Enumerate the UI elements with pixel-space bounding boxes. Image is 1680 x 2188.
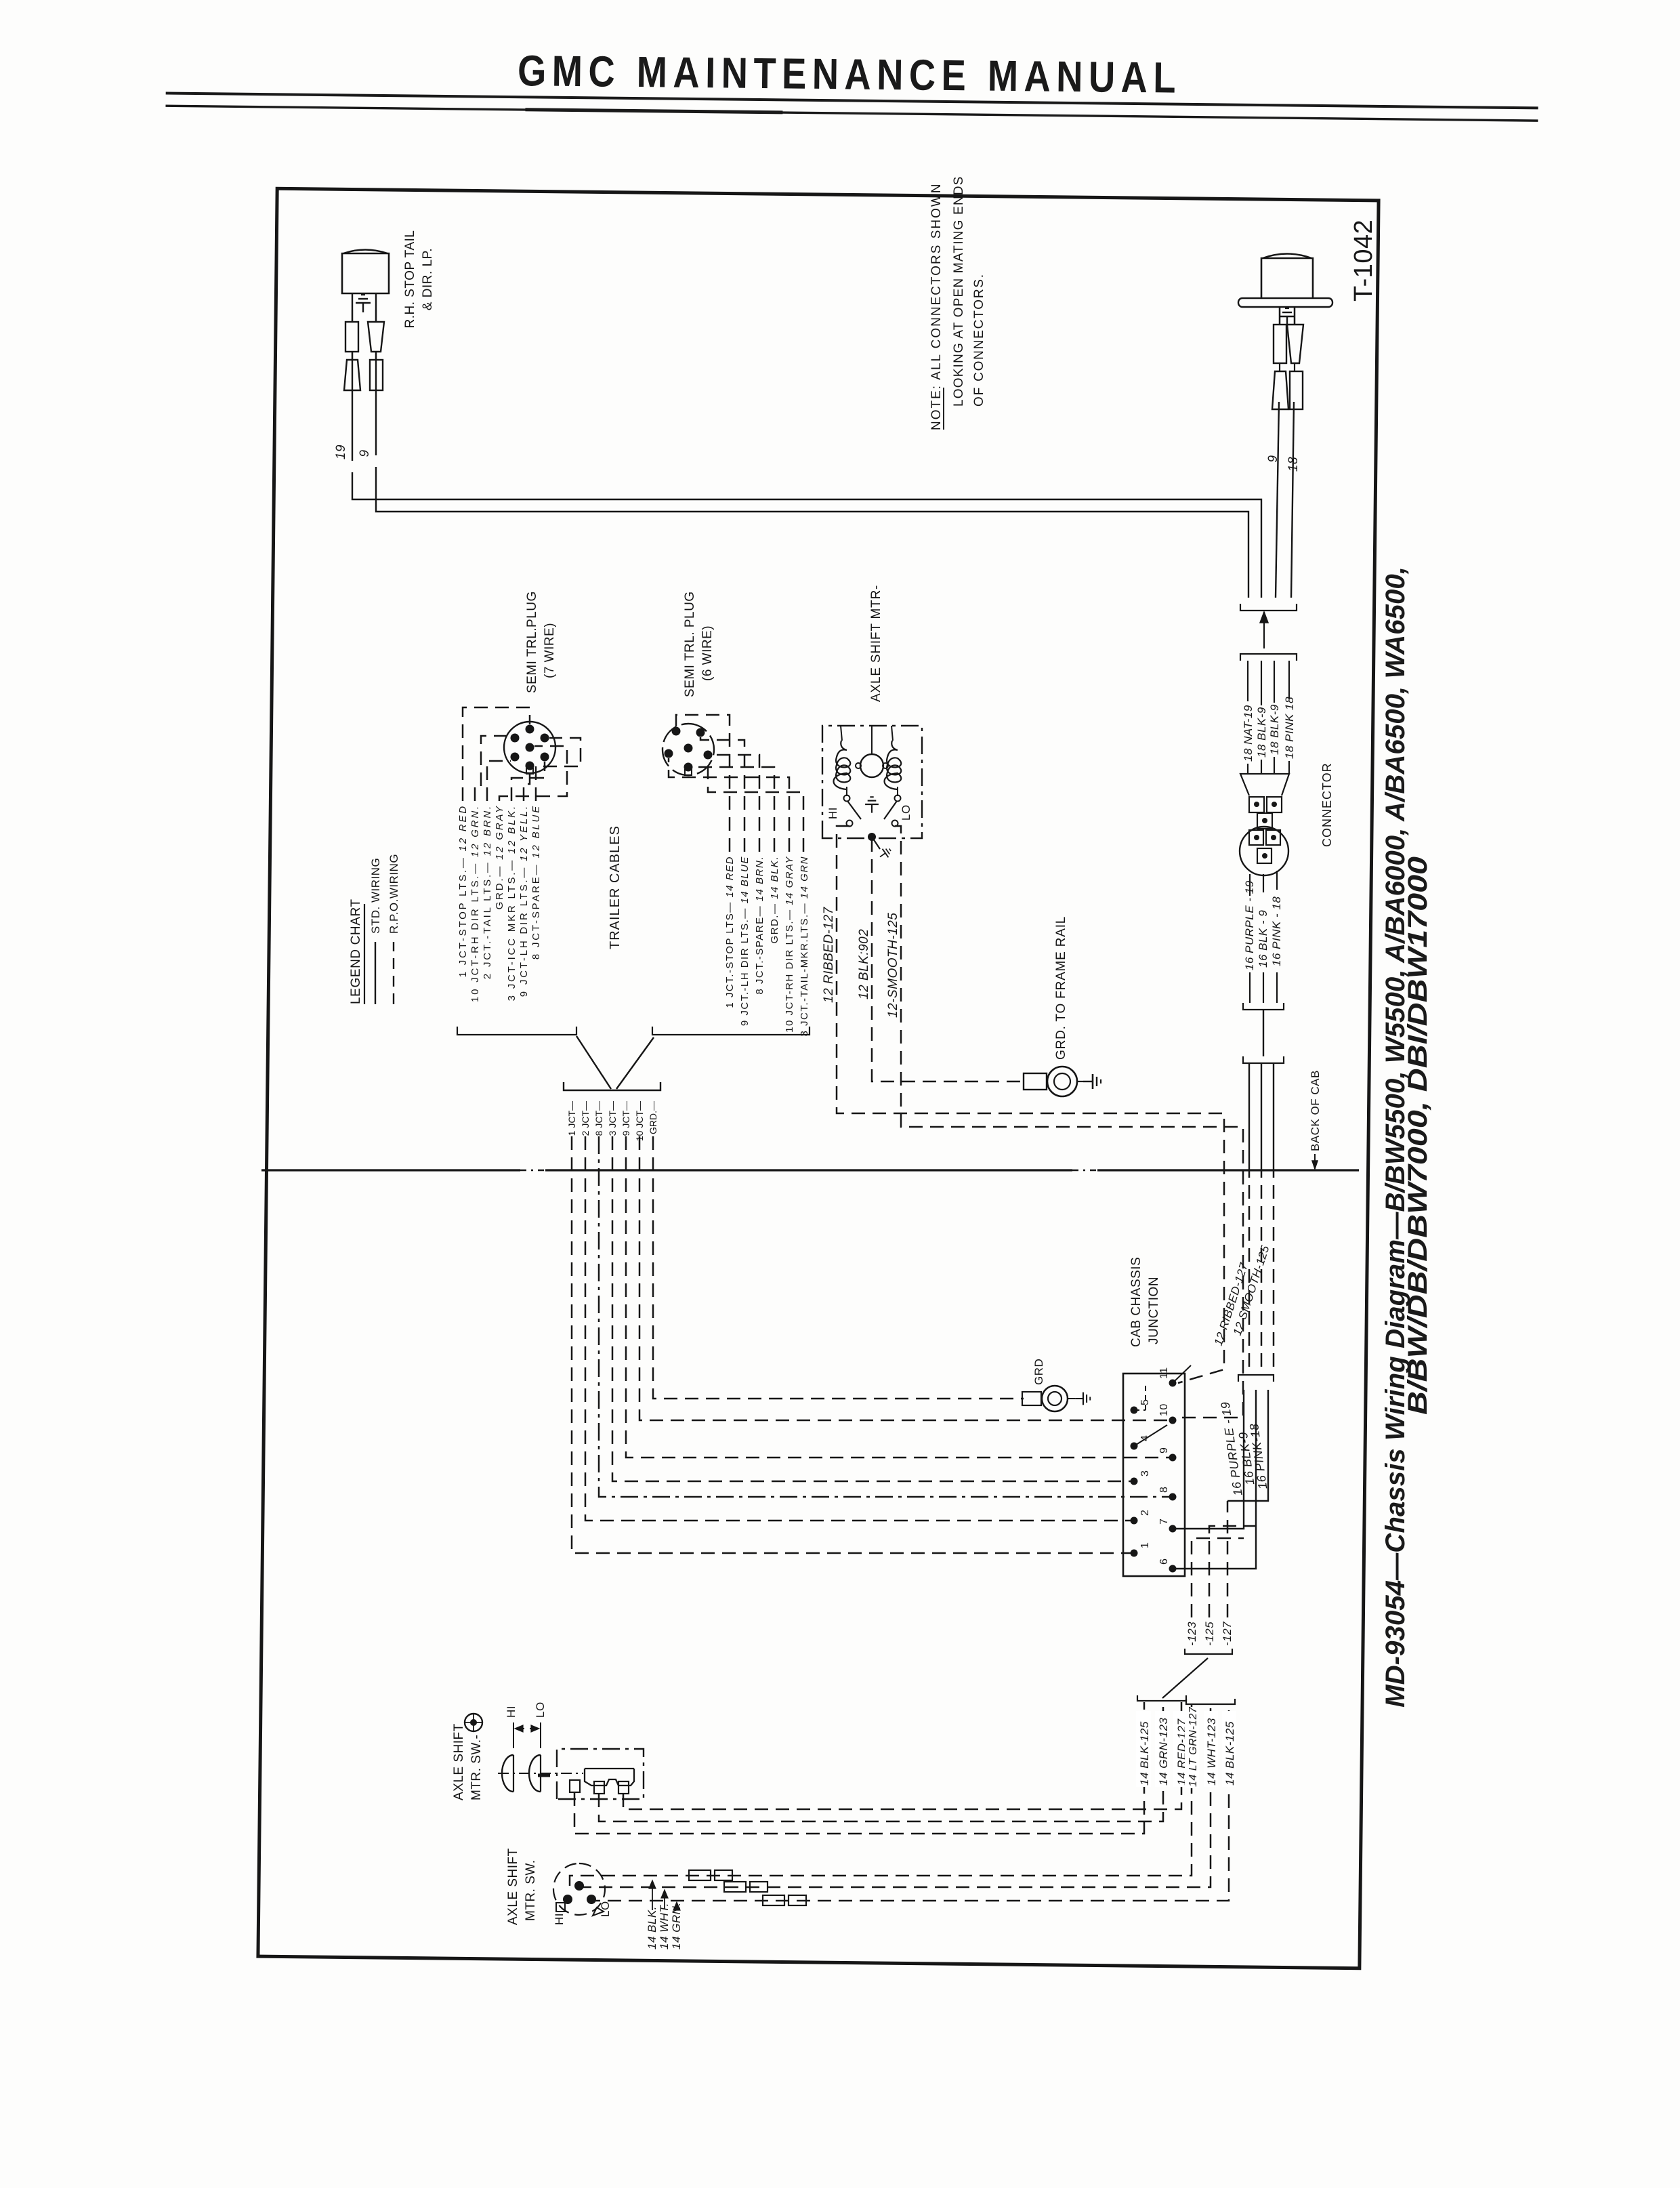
svg-text:10 JCT-RH DIR LTS.— 12 GRN.: 10 JCT-RH DIR LTS.— 12 GRN.	[469, 804, 481, 1002]
svg-text:(7 WIRE): (7 WIRE)	[543, 623, 557, 678]
svg-text:14 BLK-125: 14 BLK-125	[1223, 1721, 1236, 1786]
svg-text:HI: HI	[553, 1913, 566, 1925]
svg-text:GMC MAINTENANCE MANUAL: GMC MAINTENANCE MANUAL	[518, 46, 1182, 102]
svg-text:GRD.— 14 BLK.: GRD.— 14 BLK.	[769, 856, 780, 944]
svg-text:R.P.O.WIRING: R.P.O.WIRING	[387, 854, 400, 934]
svg-text:AXLE SHIFT: AXLE SHIFT	[452, 1723, 466, 1800]
svg-text:2 JCT.-TAIL LTS.— 12 BRN.: 2 JCT.-TAIL LTS.— 12 BRN.	[482, 804, 493, 979]
svg-text:B/BW/DB/DBW7000, DBI/DBW17000: B/BW/DB/DBW7000, DBI/DBW17000	[1403, 856, 1433, 1415]
svg-text:1 JCT—: 1 JCT—	[566, 1101, 577, 1136]
svg-text:BACK OF CAB: BACK OF CAB	[1309, 1070, 1322, 1151]
svg-text:SEMI TRL.PLUG: SEMI TRL.PLUG	[525, 591, 539, 693]
svg-text:14 LT GRN-127: 14 LT GRN-127	[1188, 1706, 1199, 1787]
svg-text:12 BLK:902: 12 BLK:902	[857, 929, 871, 999]
svg-text:LO: LO	[534, 1701, 547, 1718]
svg-text:14 WHT-123: 14 WHT-123	[1205, 1718, 1218, 1786]
svg-text:JUNCTION: JUNCTION	[1147, 1277, 1161, 1344]
svg-text:9 JCT-LH DIR LTS.— 12 YELL.: 9 JCT-LH DIR LTS.— 12 YELL.	[518, 804, 530, 997]
svg-text:18 BLK-9: 18 BLK-9	[1268, 704, 1281, 755]
svg-text:HI: HI	[826, 807, 839, 819]
svg-text:11: 11	[1158, 1367, 1170, 1379]
svg-text:STD. WIRING: STD. WIRING	[369, 858, 382, 934]
svg-text:OF CONNECTORS.: OF CONNECTORS.	[972, 273, 986, 407]
svg-text:1 JCT.-STOP LTS— 14 RED: 1 JCT.-STOP LTS— 14 RED	[724, 856, 736, 1008]
svg-text:LO: LO	[900, 804, 912, 821]
svg-text:12 RIBBED-127: 12 RIBBED-127	[822, 906, 836, 1003]
svg-text:9: 9	[1158, 1447, 1170, 1453]
svg-text:18 PINK 18: 18 PINK 18	[1283, 697, 1296, 759]
svg-text:CAB CHASSIS: CAB CHASSIS	[1129, 1257, 1143, 1347]
svg-text:R.H. STOP TAIL: R.H. STOP TAIL	[403, 230, 417, 329]
svg-text:MTR. SW.: MTR. SW.	[524, 1859, 538, 1921]
svg-text:GRD. TO FRAME RAIL: GRD. TO FRAME RAIL	[1054, 916, 1068, 1060]
svg-text:2 JCT—: 2 JCT—	[580, 1101, 591, 1136]
svg-text:3 JCT-ICC MKR LTS.— 12 BLK.: 3 JCT-ICC MKR LTS.— 12 BLK.	[506, 804, 518, 1001]
svg-text:14 WHT.: 14 WHT.	[658, 1903, 671, 1949]
svg-text:-127: -127	[1221, 1622, 1234, 1646]
svg-text:6: 6	[1158, 1559, 1170, 1565]
svg-text:HI: HI	[505, 1706, 518, 1718]
svg-text:14 BLK-125: 14 BLK-125	[1138, 1721, 1151, 1786]
svg-text:MTR. SW.-: MTR. SW.-	[469, 1735, 484, 1800]
svg-text:10 JCT-RH DIR LTS.— 14 GRAY: 10 JCT-RH DIR LTS.— 14 GRAY	[784, 856, 795, 1033]
svg-text:(6 WIRE): (6 WIRE)	[700, 625, 715, 681]
svg-text:16 BLK - 9: 16 BLK - 9	[1257, 910, 1269, 968]
svg-text:3: 3	[1139, 1470, 1151, 1477]
svg-text:18 BLK-9: 18 BLK-9	[1255, 707, 1268, 758]
svg-text:AXLE SHIFT: AXLE SHIFT	[506, 1848, 520, 1925]
svg-text:SEMI TRL. PLUG: SEMI TRL. PLUG	[683, 591, 697, 697]
svg-text:3 JCT—: 3 JCT—	[607, 1101, 618, 1136]
svg-text:GRD.—: GRD.—	[648, 1101, 658, 1134]
svg-text:LO: LO	[599, 1901, 612, 1917]
svg-text:-125: -125	[1203, 1622, 1216, 1646]
svg-text:9 JCT—: 9 JCT—	[621, 1101, 631, 1136]
svg-text:-123: -123	[1185, 1622, 1198, 1646]
svg-text:10: 10	[1158, 1403, 1170, 1416]
svg-text:12-SMOOTH-125: 12-SMOOTH-125	[886, 913, 900, 1018]
svg-text:9 JCT.-LH DIR LTS.— 14 BLUE: 9 JCT.-LH DIR LTS.— 14 BLUE	[739, 856, 751, 1026]
svg-text:16 PURPLE - 19: 16 PURPLE - 19	[1243, 880, 1256, 970]
svg-text:8 JCT-SPARE— 12 BLUE: 8 JCT-SPARE— 12 BLUE	[530, 804, 542, 959]
svg-text:8 JCT.-SPARE— 14 BRN.: 8 JCT.-SPARE— 14 BRN.	[754, 856, 765, 995]
svg-text:8 JCT—: 8 JCT—	[593, 1101, 604, 1136]
svg-text:AXLE SHIFT MTR-: AXLE SHIFT MTR-	[869, 585, 883, 702]
svg-text:9: 9	[358, 449, 372, 457]
svg-text:GRD: GRD	[1032, 1359, 1045, 1385]
svg-text:8: 8	[1158, 1487, 1170, 1493]
svg-text:TRAILER CABLES: TRAILER CABLES	[608, 825, 623, 949]
svg-text:T-1042: T-1042	[1349, 220, 1378, 302]
svg-text:CONNECTOR: CONNECTOR	[1320, 762, 1334, 847]
svg-text:7: 7	[1158, 1519, 1170, 1525]
svg-text:14 BLK.: 14 BLK.	[646, 1906, 658, 1949]
svg-text:LEGEND CHART: LEGEND CHART	[349, 899, 363, 1004]
svg-text:& DIR. LP.: & DIR. LP.	[421, 248, 435, 310]
svg-text:10 JCT—: 10 JCT—	[634, 1101, 645, 1141]
svg-text:GRD.— 12 GRAY: GRD.— 12 GRAY	[494, 804, 505, 909]
svg-text:16 PINK - 18: 16 PINK - 18	[1270, 896, 1283, 966]
svg-text:18: 18	[1286, 457, 1301, 472]
svg-text:1 JCT-STOP LTS.— 12 RED: 1 JCT-STOP LTS.— 12 RED	[457, 804, 469, 977]
svg-text:9: 9	[1266, 455, 1280, 462]
svg-text:LOOKING AT OPEN MATING ENDS: LOOKING AT OPEN MATING ENDS	[952, 176, 966, 407]
svg-text:1: 1	[1139, 1542, 1151, 1548]
svg-text:3 JCT.-TAIL-MKR.LTS.— 14 GRN: 3 JCT.-TAIL-MKR.LTS.— 14 GRN	[799, 856, 810, 1036]
svg-text:2: 2	[1139, 1510, 1151, 1516]
svg-text:19: 19	[334, 445, 348, 459]
svg-text:18 NAT-19: 18 NAT-19	[1242, 705, 1255, 762]
svg-text:NOTE: ALL CONNECTORS SHOWN: NOTE: ALL CONNECTORS SHOWN	[929, 182, 944, 430]
svg-text:14 GRN-123: 14 GRN-123	[1157, 1718, 1170, 1786]
